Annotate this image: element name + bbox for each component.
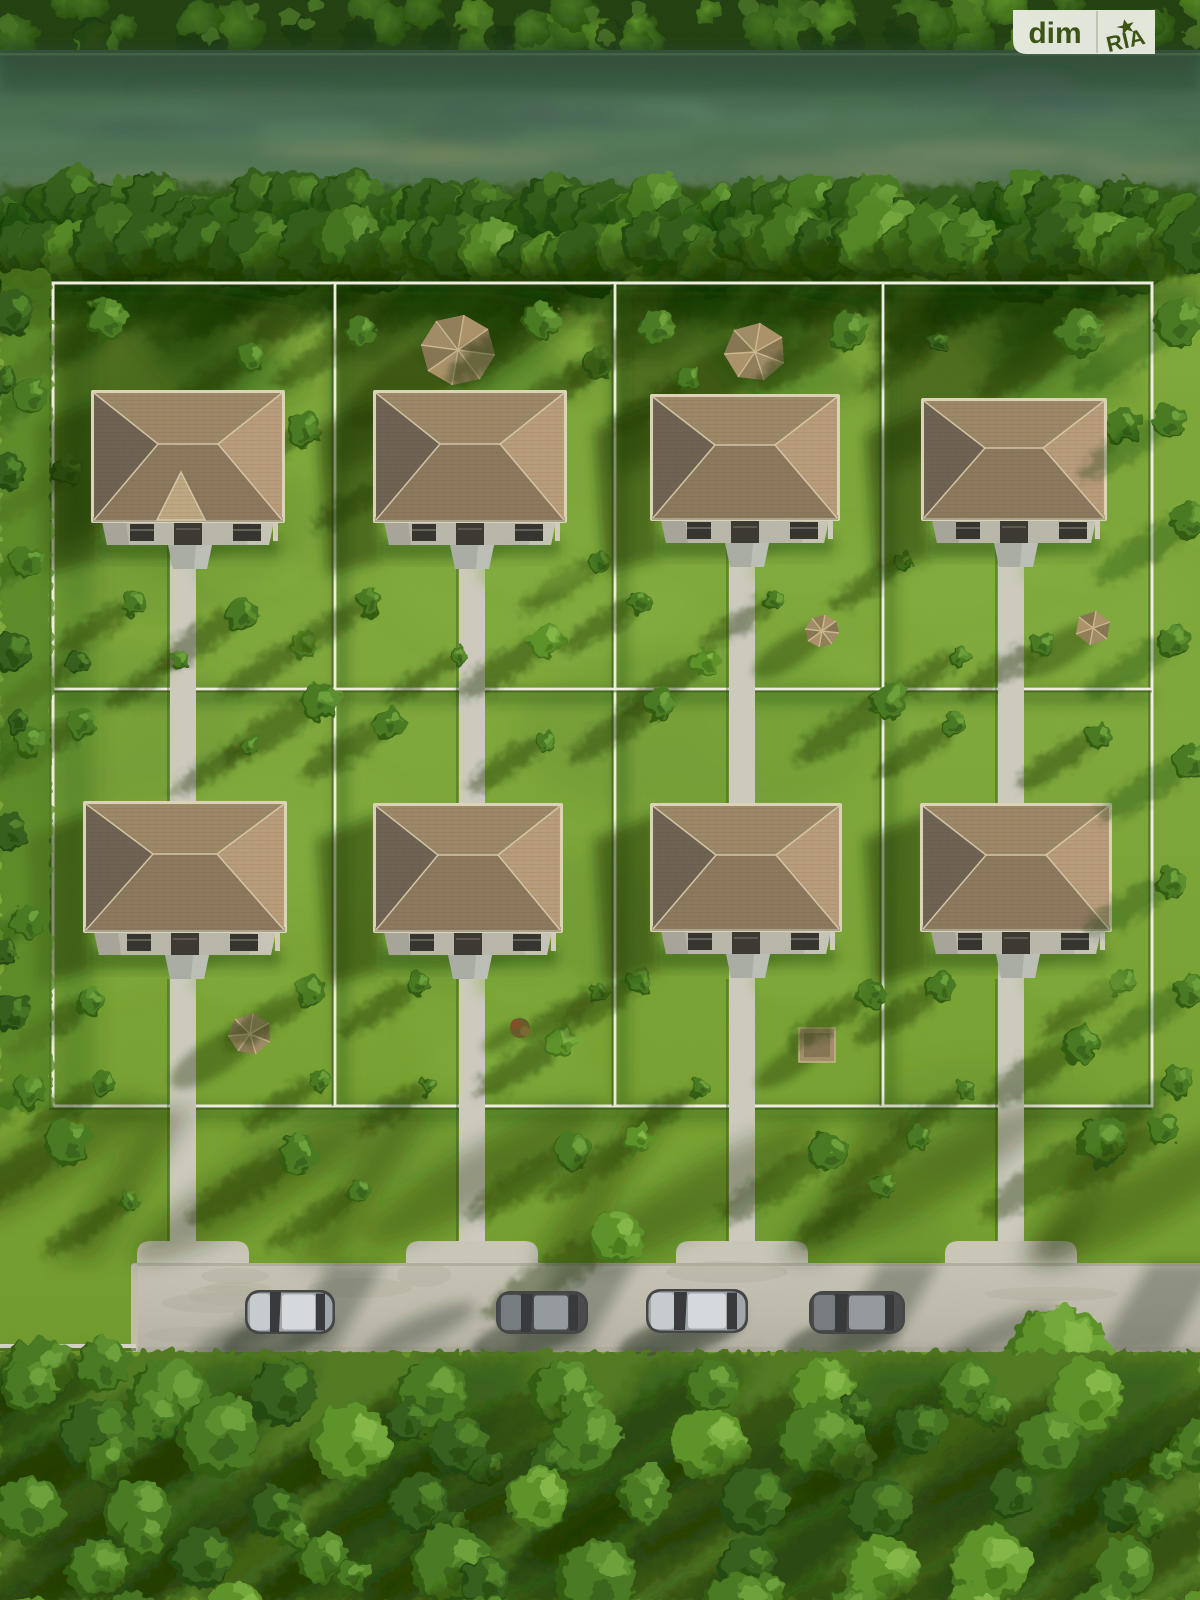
svg-text:dim: dim <box>1028 17 1081 50</box>
